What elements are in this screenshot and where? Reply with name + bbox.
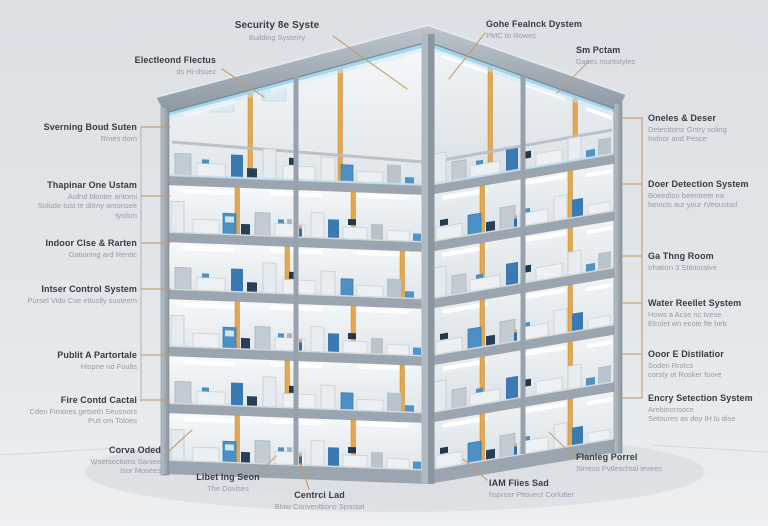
callout-title: Doer Detection System <box>648 179 749 190</box>
callout-thapinar-system: Thapinar One Ustam Aufnd blonter antomi … <box>38 180 137 220</box>
callout-corva: Corva Oded Wsersoctions Saniee Isor Mose… <box>91 445 161 476</box>
callout-cable-system: Gohe Fealnck Dystem PMC to Rowes <box>486 19 582 40</box>
callout-subtitle: Hispne nd Foults <box>57 362 137 371</box>
callout-title: Security 8e Syste <box>197 20 357 32</box>
callout-subtitle: Detecttorsr Gntry soling Indnor and Pesc… <box>648 125 727 144</box>
callout-indoor-system: Indoor Clse & Rarten Gationing ard Renti… <box>45 238 137 259</box>
callout-subtitle: Rmes dom <box>44 134 137 143</box>
callout-central-lab: Centrci Lad Blow Conventtions Spastat <box>252 490 387 511</box>
callout-title: Intser Control System <box>28 284 138 295</box>
callout-water-relief: Water Reellet System Hows a Acse nc tves… <box>648 298 741 329</box>
diagram-canvas: Security 8e Syste Building Systerry Elec… <box>0 0 768 526</box>
callout-subtitle: Blow Conventtions Spastat <box>252 502 387 511</box>
callout-subtitle: Dases muntstyles <box>576 57 635 66</box>
callout-title: Ooor E Distilatior <box>648 349 724 360</box>
callout-subtitle: Aufnd blonter antomi Solude tust te ditr… <box>38 192 137 220</box>
callout-title: Sverning Boud Suten <box>44 122 137 133</box>
callout-subtitle: Irhation 3 Stitrioralve <box>648 263 717 272</box>
callout-title: Ga Thng Room <box>648 251 717 262</box>
callout-title: Corva Oded <box>91 445 161 456</box>
callout-subtitle: Hows a Acse nc tvese Etrolet wn ecote ft… <box>648 310 741 329</box>
callout-oneles-deser: Oneles & Deser Detecttorsr Gntry soling … <box>648 113 727 144</box>
callout-title: Electleond Flectus <box>135 55 216 66</box>
callout-title: Publit A Partortale <box>57 350 137 361</box>
callout-fire-control: Fire Contd Cactal Cden Fimores getseth S… <box>29 395 137 426</box>
callout-planning-panel: Flanleg Porrel Sirreso Pvtleschtal ievee… <box>576 452 662 473</box>
callout-door-detection: Doer Detection System Boeedion beentrete… <box>648 179 749 210</box>
callout-sverning-system: Sverning Boud Suten Rmes dom <box>44 122 137 143</box>
callout-electronics: Electleond Flectus ds Hi-dsuez <box>135 55 216 76</box>
callout-gathering-room: Ga Thng Room Irhation 3 Stitrioralve <box>648 251 717 272</box>
callout-subtitle: Sirreso Pvtleschtal ievees <box>576 464 662 473</box>
callout-title: IAM Flies Sad <box>489 478 574 489</box>
callout-subtitle: Cden Fimores getseth Seusnors Puti om To… <box>29 407 137 426</box>
callout-subtitle: Arebinorisoce Setoures as doy IH lu dise <box>648 405 753 424</box>
callout-control-system: Intser Control System Pursel Vido Cse et… <box>28 284 138 305</box>
callout-subtitle: Boeedion beentrete na fanocis aur your r… <box>648 191 749 210</box>
callout-subtitle: ds Hi-dsuez <box>135 67 216 76</box>
callout-subtitle: Building Systerry <box>197 33 357 42</box>
callout-sm-system: Sm Pctam Dases muntstyles <box>576 45 635 66</box>
callout-door-distillation: Ooor E Distilatior Soden Rrolcs corsty o… <box>648 349 724 380</box>
callout-title: Thapinar One Ustam <box>38 180 137 191</box>
callout-security-system: Security 8e Syste Building Systerry <box>197 20 357 42</box>
callout-title: Sm Pctam <box>576 45 635 56</box>
callout-subtitle: Wsersoctions Saniee Isor Mosees <box>91 457 161 476</box>
callout-subtitle: Soden Rrolcs corsty ot Rosker foore <box>648 361 724 380</box>
callout-title: Fire Contd Cactal <box>29 395 137 406</box>
callout-title: Oneles & Deser <box>648 113 727 124</box>
callout-subtitle: PMC to Rowes <box>486 31 582 40</box>
callout-public-portal: Publit A Partortale Hispne nd Foults <box>57 350 137 371</box>
callout-iam-files: IAM Flies Sad hsprosr Pttovect Corlutter <box>489 478 574 499</box>
callout-subtitle: Gationing ard Rentic <box>45 250 137 259</box>
callout-subtitle: hsprosr Pttovect Corlutter <box>489 490 574 499</box>
callout-title: Libet Ing Seon <box>173 472 283 483</box>
callout-title: Centrci Lad <box>252 490 387 501</box>
callout-title: Gohe Fealnck Dystem <box>486 19 582 30</box>
callout-title: Flanleg Porrel <box>576 452 662 463</box>
callout-subtitle: Pursel Vido Cse ettuslly susteem <box>28 296 138 305</box>
callout-entry-detection: Encry Setection System Arebinorisoce Set… <box>648 393 753 424</box>
callout-title: Encry Setection System <box>648 393 753 404</box>
callout-title: Water Reellet System <box>648 298 741 309</box>
callout-title: Indoor Clse & Rarten <box>45 238 137 249</box>
